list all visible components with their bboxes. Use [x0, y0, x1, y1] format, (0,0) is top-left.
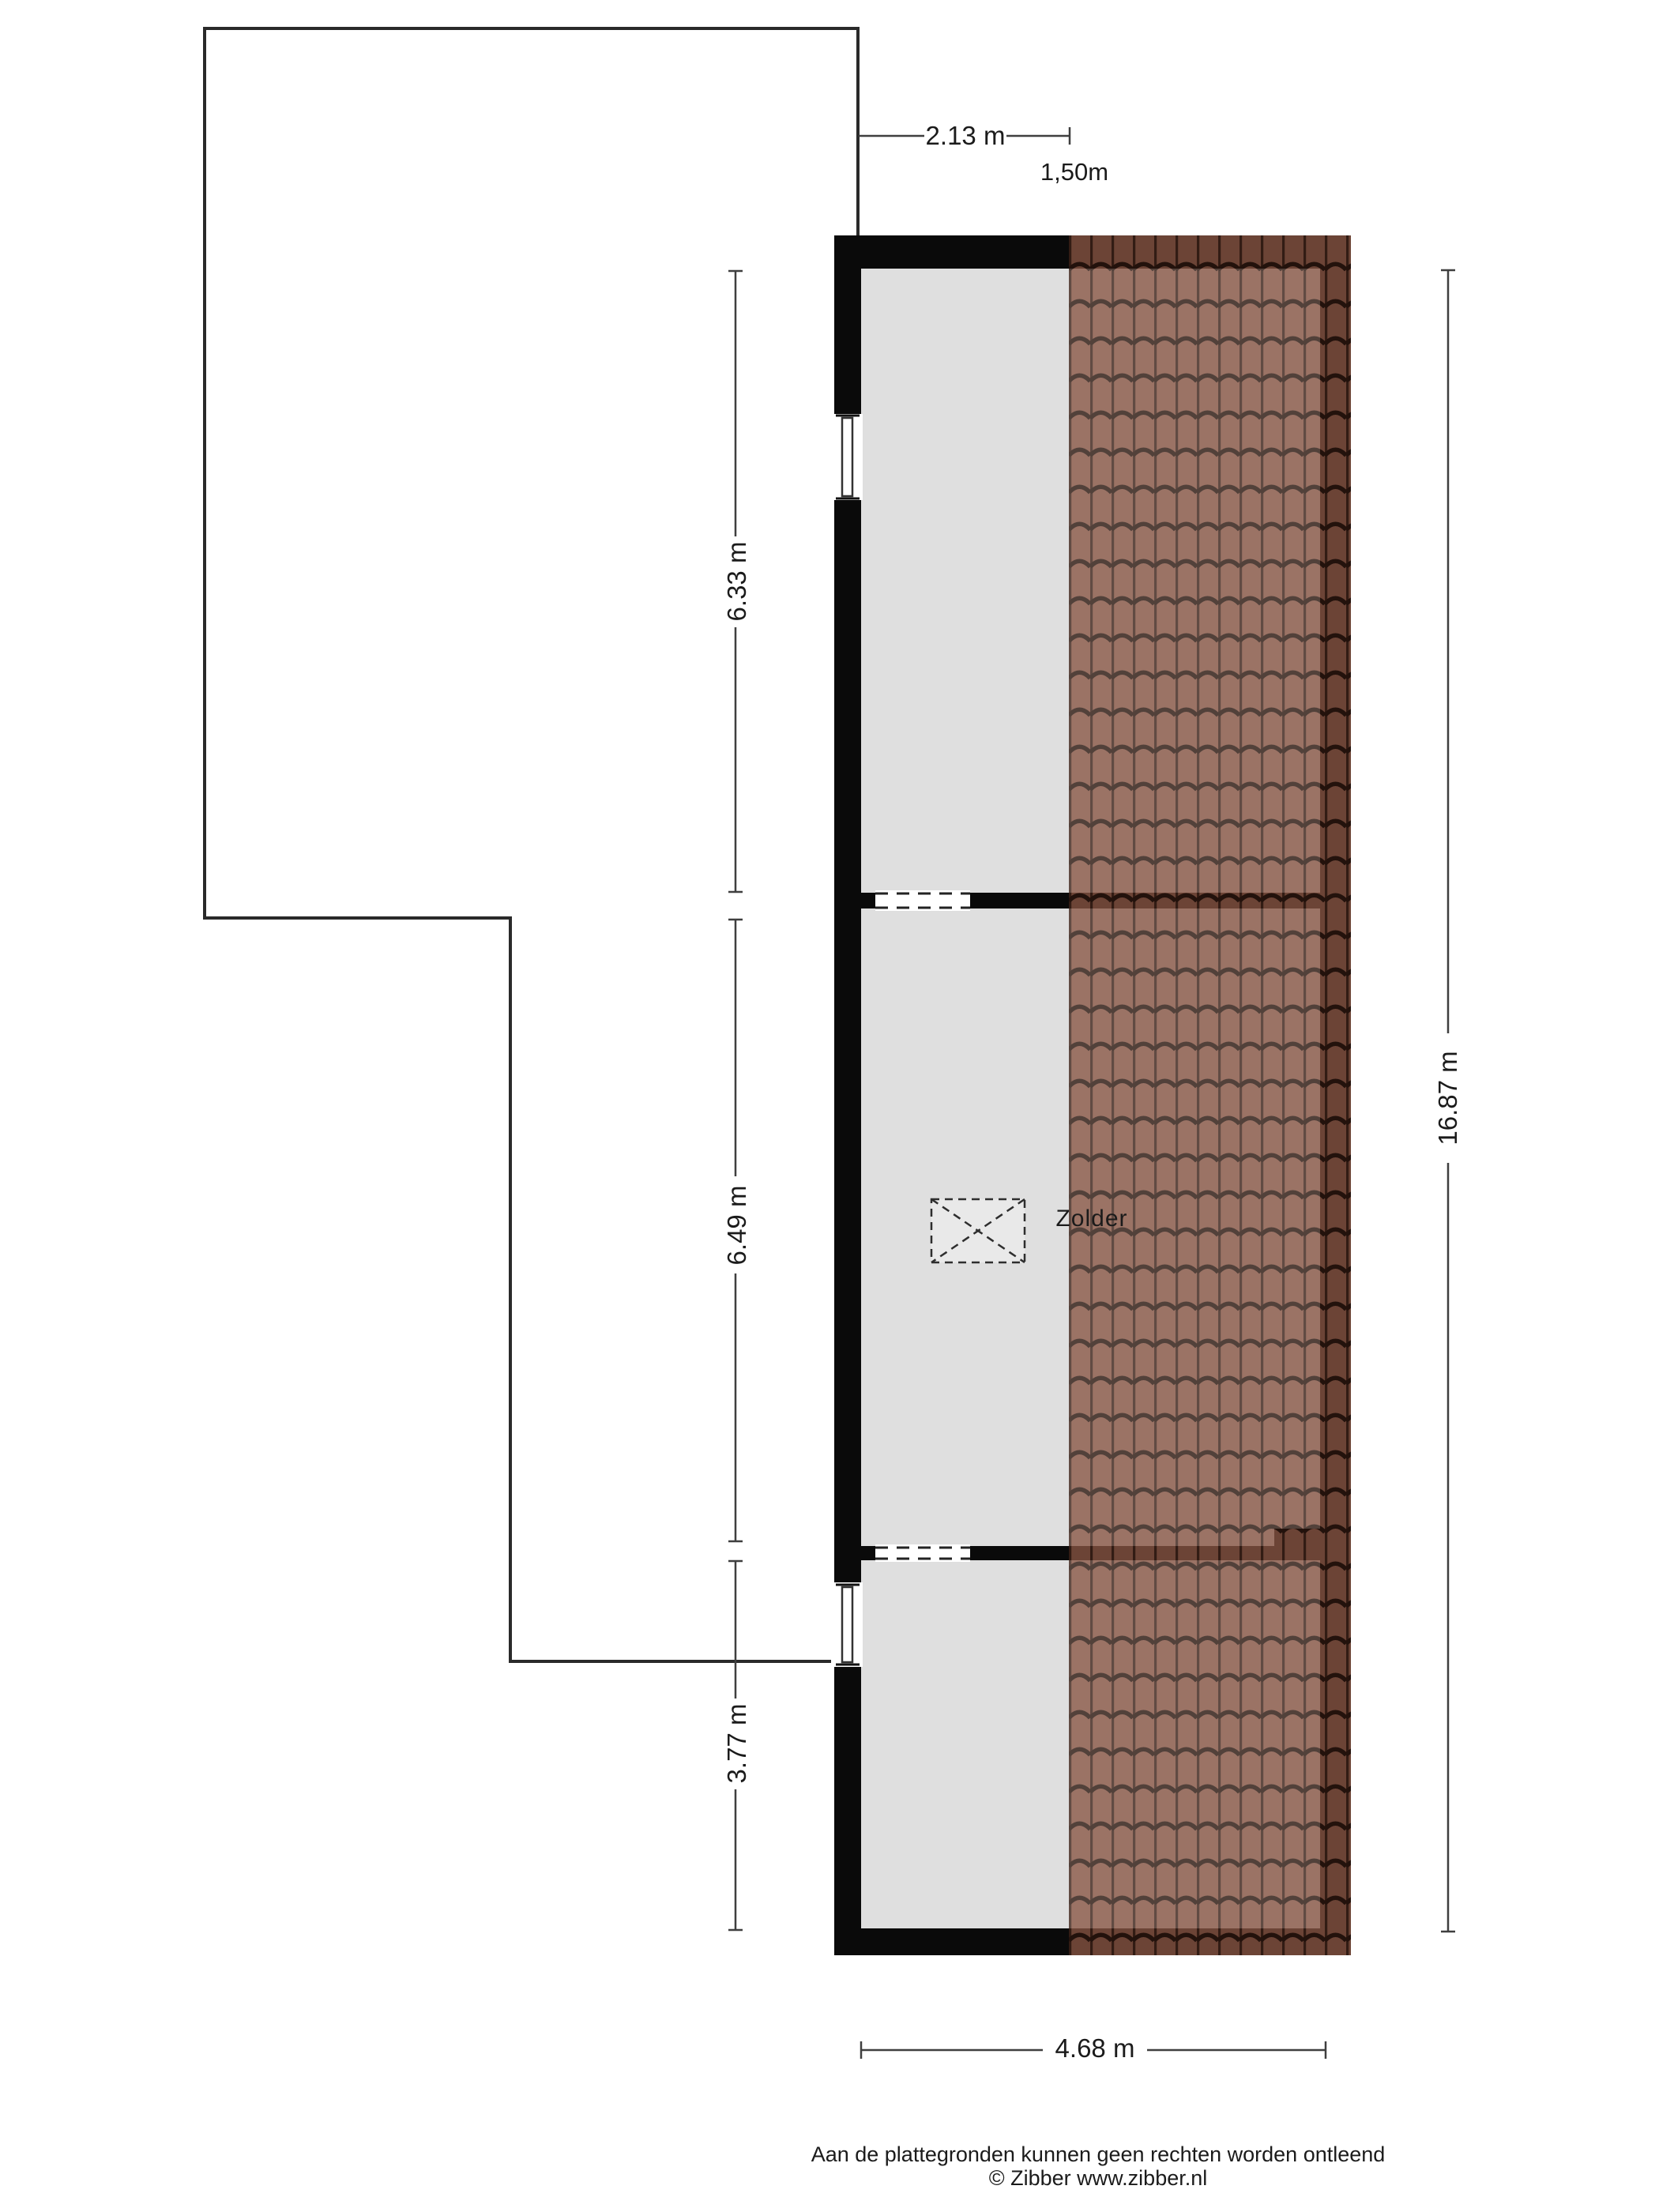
- roof-tile-area: [1069, 235, 1351, 1955]
- dim-top-width-label: 2.13 m: [926, 121, 1006, 151]
- passage-opening-2: [875, 1544, 970, 1562]
- dim-left-segment-3-label: 3.77 m: [722, 1704, 752, 1784]
- passage-opening-1: [875, 890, 970, 911]
- void-hatch-box: [931, 1199, 1025, 1262]
- window-bottom-room: [831, 1582, 863, 1667]
- footer-credit: © Zibber www.zibber.nl: [811, 2166, 1386, 2190]
- dim-headroom-label: 1,50m: [1040, 158, 1108, 186]
- footer-disclaimer: Aan de plattegronden kunnen geen rechten…: [811, 2142, 1386, 2166]
- dim-left-segment-1-label: 6.33 m: [722, 542, 752, 622]
- dim-bottom-width-label: 4.68 m: [1055, 2033, 1135, 2063]
- dim-right-total-label: 16.87 m: [1433, 1051, 1463, 1145]
- lower-floor-contour: [205, 28, 858, 1661]
- floorplan-page: 2.13 m 1,50m 6.33 m 6.49 m 3.77 m 16.87 …: [0, 0, 1659, 2212]
- dim-left-segment-2-label: 6.49 m: [722, 1186, 752, 1266]
- room-name-zolder: Zolder: [1055, 1206, 1127, 1232]
- footer: Aan de plattegronden kunnen geen rechten…: [811, 2142, 1386, 2190]
- floorplan-drawing: [0, 0, 1659, 2212]
- window-top-room: [831, 414, 863, 500]
